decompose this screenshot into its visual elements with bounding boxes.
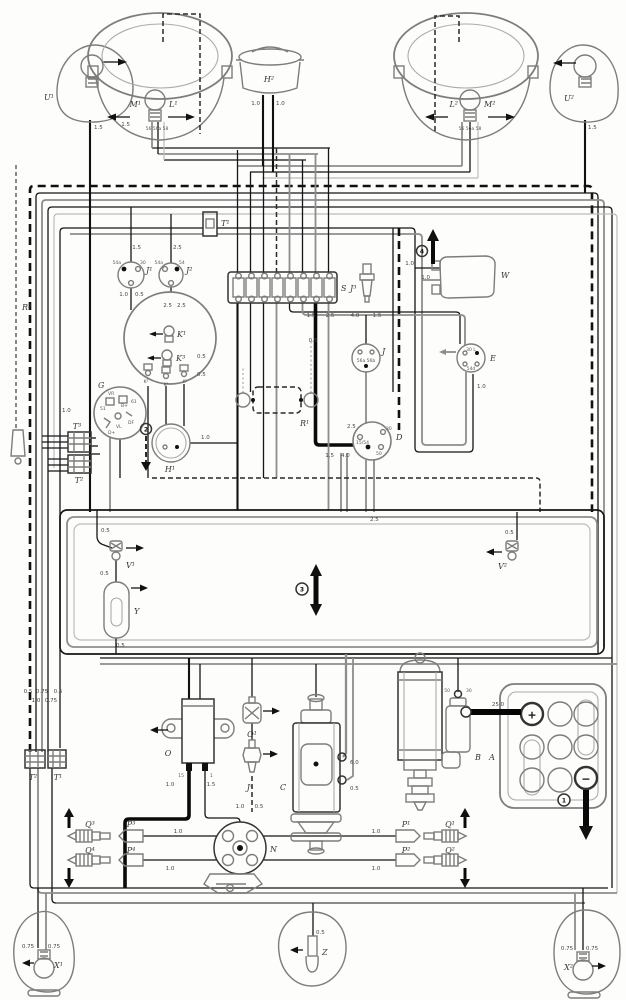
sender-v2-label: V² [498, 562, 507, 571]
terminal-label: 54 [179, 260, 185, 266]
distributor: N [204, 822, 278, 893]
terminal-label: DF [128, 420, 134, 426]
cable-connectors-mid: T³ T² 1.0 [62, 408, 91, 485]
terminal-label: K² [144, 379, 149, 385]
arrow-right-icon [140, 585, 148, 592]
ground-arrow-up-icon [460, 808, 470, 817]
gauge-label: 0.75 [45, 698, 58, 704]
gauge-label: 0.5 [316, 930, 325, 936]
gauge-label: 0.5 [255, 804, 264, 810]
gauge-label: 1.0 [62, 408, 71, 414]
spark-plugs-right: P¹ Q¹ P² Q² 1.0 1.0 [372, 808, 470, 888]
gauge-label: 0.5 [197, 354, 206, 360]
ground-arrow-down-icon [141, 462, 151, 471]
gauge-label: 0.5 [309, 338, 318, 344]
gauge-label: 1.0 [236, 804, 245, 810]
terminal-label: VL [116, 424, 122, 430]
cable-connector-top: T¹ [203, 212, 230, 236]
horn-label: H² [263, 75, 274, 84]
gauge-label: 1.0 [32, 698, 41, 704]
connector-label: T¹ [221, 219, 230, 228]
gauge-label: 0.5 [100, 571, 109, 577]
switch-label: J¹ [144, 266, 152, 275]
gauge-label: 1.5 [588, 125, 597, 131]
plug-label: J³ [348, 284, 356, 293]
ground-arrow-down-icon [460, 879, 470, 888]
gauge-label: 1.0 [251, 101, 260, 107]
regulator-label: VR [108, 391, 114, 397]
main-bulb-label: L² [448, 100, 458, 109]
connector-t1b-label: T¹ [54, 773, 63, 782]
gauge-label: 6.0 [350, 760, 359, 766]
arrow-left-icon [147, 356, 154, 361]
front-turn-signal-right: U² 1.5 [550, 45, 618, 131]
antenna-label: R² [21, 303, 31, 312]
ground-arrow-right-icon [506, 114, 515, 121]
plug-connector-p1-label: P¹ [401, 820, 411, 829]
plug-j3: J³ [348, 264, 374, 302]
fuses [233, 273, 335, 302]
terminal-label: K⁵ [183, 379, 188, 385]
switch-label: J² [184, 266, 192, 275]
gauge-label: 0.75 [586, 946, 599, 952]
gauge-label: 0.5 [505, 530, 514, 536]
sender-v1-label: V¹ [126, 561, 135, 570]
ground-arrow-up-icon [310, 564, 322, 576]
terminal-labels: 56 56a 58 [146, 126, 169, 132]
gauge-label: 2.5 [347, 424, 356, 430]
dim-bulb-label: M¹ [129, 100, 141, 109]
plug-connector-p4-label: P⁴ [126, 846, 136, 855]
gauge-label: 1.5 [307, 313, 316, 319]
ground-arrow-right-icon [186, 114, 195, 121]
terminal-label: 51 [100, 406, 106, 412]
gauge-label: 1.5 [132, 245, 141, 251]
gauge-label: 1.5 [325, 453, 334, 459]
wiper-switch: 30 L 54d E 1.0 [439, 344, 496, 390]
headlight-left: M¹ L¹ 56 56a 58 1.5 [88, 13, 232, 140]
terminal-label: 54d [467, 366, 476, 372]
terminal-label: 54a [155, 260, 164, 266]
coil-label: O [165, 749, 172, 758]
antenna: R² [11, 303, 31, 464]
ignition-starter-switch: 30 15/54 50 D 2.5 1.5 4.0 2.5 [325, 422, 403, 523]
tail-right-label: X² [563, 963, 573, 972]
gauge-label: 2.5 [326, 313, 335, 319]
gauge-label: 1.0 [477, 384, 486, 390]
ground-arrow-down-icon [579, 826, 593, 840]
tail-left-label: X¹ [53, 961, 63, 970]
switch-j2: 54a 54 J² 2.5 2.5 2.5 [155, 245, 193, 309]
battery-label: A [488, 753, 495, 762]
gauge-label: 2.5 [177, 303, 186, 309]
arrow-right-icon [270, 751, 278, 758]
fusebox-output-wires [152, 228, 540, 512]
terminal-label: D+ [108, 430, 115, 436]
generator: C 6.0 0.5 [280, 695, 359, 855]
arrow-left-icon [22, 960, 30, 967]
gauge-label: 1.0 [166, 866, 175, 872]
gauge-label: 0.5 [101, 528, 110, 534]
terminal-label: 1 [210, 773, 213, 779]
lamp-k3-label: K³ [175, 354, 185, 363]
plate-light-label: Z [321, 948, 328, 957]
gauge-label: 4.0 [341, 453, 350, 459]
wiper-motor: W 1.0 1.0 [405, 256, 510, 298]
distributor-cap [204, 874, 262, 893]
gauge-label: 0.75 [48, 944, 61, 950]
gauge-label: 0.5 [197, 372, 206, 378]
gauge-label: 1.0 [421, 275, 430, 281]
horn: H² 1.0 1.0 [236, 47, 304, 107]
battery: + − A [488, 684, 606, 808]
connector-t3-label: T³ [73, 422, 82, 431]
terminal-label: K⁴ [164, 382, 169, 388]
gauge-label: 2.5 [163, 303, 172, 309]
gauge-label: 0.75 [561, 946, 574, 952]
starter: 50 30 B [398, 653, 481, 810]
tail-light-left: X¹ 0.75 0.75 [14, 911, 75, 996]
headlight-right: L² M² 56 56a 58 [394, 13, 538, 140]
ground-number: 3 [300, 587, 304, 594]
radio-label: R¹ [299, 419, 309, 428]
arrow-right-icon [272, 708, 280, 715]
gauge-label: 1.0 [276, 101, 285, 107]
generator-label: C [280, 783, 286, 792]
wiring-diagram-page: R² U¹ 1.5 M¹ L¹ 56 56a 58 1.5 H² 1.0 1. [0, 0, 626, 1000]
terminal-label: 30 [466, 688, 472, 694]
plug-connector-p2-label: P² [401, 846, 411, 855]
ignition-coil: O 15 1 1.0 1.5 [150, 699, 234, 788]
arrow-left-icon [150, 727, 158, 734]
ground-point-3: 3 [296, 564, 322, 616]
gauge-label: 1.0 [166, 782, 175, 788]
horn-ring: H¹ 1.0 [152, 424, 210, 474]
dimmer-switch: 56a 56b J 0.5 [309, 338, 386, 372]
gauge-label: 1.0 [372, 866, 381, 872]
battery-minus-terminal: − [581, 773, 590, 786]
wiper-motor-label: W [501, 271, 510, 280]
ground-number: 4 [420, 249, 424, 256]
horn-ring-label: H¹ [164, 465, 175, 474]
terminal-label: 54a [113, 260, 122, 266]
terminal-label: 61 [131, 399, 137, 405]
license-plate-light: Z 0.5 [279, 912, 346, 986]
gauge-label: 1.0 [119, 292, 128, 298]
gauge-label: 1.5 [373, 313, 382, 319]
gauge-label: 1.0 [372, 829, 381, 835]
voltage-regulator: G VR 51 B+ 61 DF D+ VL [94, 381, 146, 439]
gauge-label: 1.5 [207, 782, 216, 788]
gauge-label: 0.5 [350, 786, 359, 792]
terminal-label: 50 [376, 451, 382, 457]
spark-plug-q1-label: Q¹ [445, 820, 455, 829]
gauge-label: 2.5 [370, 517, 379, 523]
terminal-labels: 56 56a 58 [459, 126, 482, 132]
lamp-k1-label: K¹ [176, 330, 186, 339]
sender-o1: O¹ [243, 697, 280, 739]
semaphore: Y 0.5 [104, 582, 148, 649]
ground-point-1: 1 [558, 790, 593, 840]
sender-j4: J⁴ 1.0 0.5 [236, 740, 278, 810]
battery-plus-terminal: + [527, 709, 536, 722]
semaphore-label: Y [134, 607, 140, 616]
sender-v1: V¹ 0.5 0.5 [100, 528, 144, 577]
starter-label: B [474, 753, 481, 762]
gauge-label: 1.0 [201, 435, 210, 441]
plug-connector-p3-label: P³ [126, 820, 136, 829]
gauge-label: 1.5 [94, 125, 103, 131]
ground-point-2: 2 [141, 424, 152, 472]
starter-pinion [404, 760, 436, 810]
gauge-label: 0.5 [116, 643, 125, 649]
turn-left-label: U¹ [44, 93, 54, 102]
terminal-label: 30 L [466, 347, 476, 353]
fusebox-label: S [341, 284, 347, 293]
spark-plug-q4-label: Q⁴ [85, 846, 95, 855]
gauge-label: 0.75 [36, 689, 49, 695]
gauge-label: 0.5 [135, 292, 144, 298]
connector-t2-label: T² [75, 476, 84, 485]
dim-bulb-label: M² [483, 100, 495, 109]
gauge-label: 1.5 [121, 122, 130, 128]
terminal-label: B+ [121, 403, 128, 409]
regulator-group-label: G [98, 381, 105, 390]
gauge-label: 25.0 [492, 702, 505, 708]
arrow-left-icon [439, 349, 446, 355]
sender-v2: V² 0.5 [486, 530, 518, 571]
ground-number: 2 [144, 427, 148, 434]
dimmer-label: J [380, 347, 386, 356]
sender-o1-label: O¹ [247, 730, 257, 739]
solenoid-terminal [461, 707, 471, 717]
terminal-label: 15 [178, 773, 184, 779]
ignition-switch-label: D [395, 433, 403, 442]
ground-arrow-left-icon [425, 114, 434, 121]
wiring-diagram: R² U¹ 1.5 M¹ L¹ 56 56a 58 1.5 H² 1.0 1. [0, 0, 626, 1000]
tail-light-right: X² 0.75 0.75 [554, 910, 620, 998]
gauge-label: 2.5 [173, 245, 182, 251]
spark-plug-q2-label: Q² [445, 846, 455, 855]
arrow-left-icon [486, 549, 494, 556]
gauge-label: 4.0 [351, 313, 360, 319]
arrow-right-icon [598, 963, 606, 970]
gauge-label: 0.5 [24, 689, 33, 695]
wiper-switch-label: E [489, 354, 496, 363]
arrow-right-icon [136, 545, 144, 552]
arrow-left-icon [290, 947, 298, 954]
ground-number: 1 [562, 798, 566, 805]
turn-right-label: U² [564, 94, 574, 103]
sender-j4-label: J⁴ [245, 783, 253, 792]
gauge-label: 0.75 [22, 944, 35, 950]
generator-pulley [291, 814, 341, 854]
ground-arrow-up-icon [64, 808, 74, 817]
ground-arrow-down-icon [64, 879, 74, 888]
gauge-label: 1.0 [174, 829, 183, 835]
gauge-label: 1.0 [405, 261, 414, 267]
main-bulb-label: L¹ [168, 100, 178, 109]
terminal-label: 56a 56b [357, 358, 376, 364]
switch-j1: 54a 30 J¹ 1.5 1.0 0.5 [113, 245, 153, 298]
distributor-label: N [269, 845, 278, 854]
gauge-label: 0.5 [54, 689, 63, 695]
terminal-label: 50 [444, 688, 450, 694]
terminal-label: 30 [386, 426, 392, 432]
arrow-left-icon [149, 332, 156, 337]
terminal-label: 30 [140, 260, 146, 266]
ground-arrow-up-icon [427, 229, 439, 241]
ground-arrow-down-icon [310, 604, 322, 616]
terminal-label: 15/54 [356, 440, 369, 446]
spark-plug-q3-label: Q³ [85, 820, 95, 829]
connector-t2b-label: T² [29, 773, 38, 782]
